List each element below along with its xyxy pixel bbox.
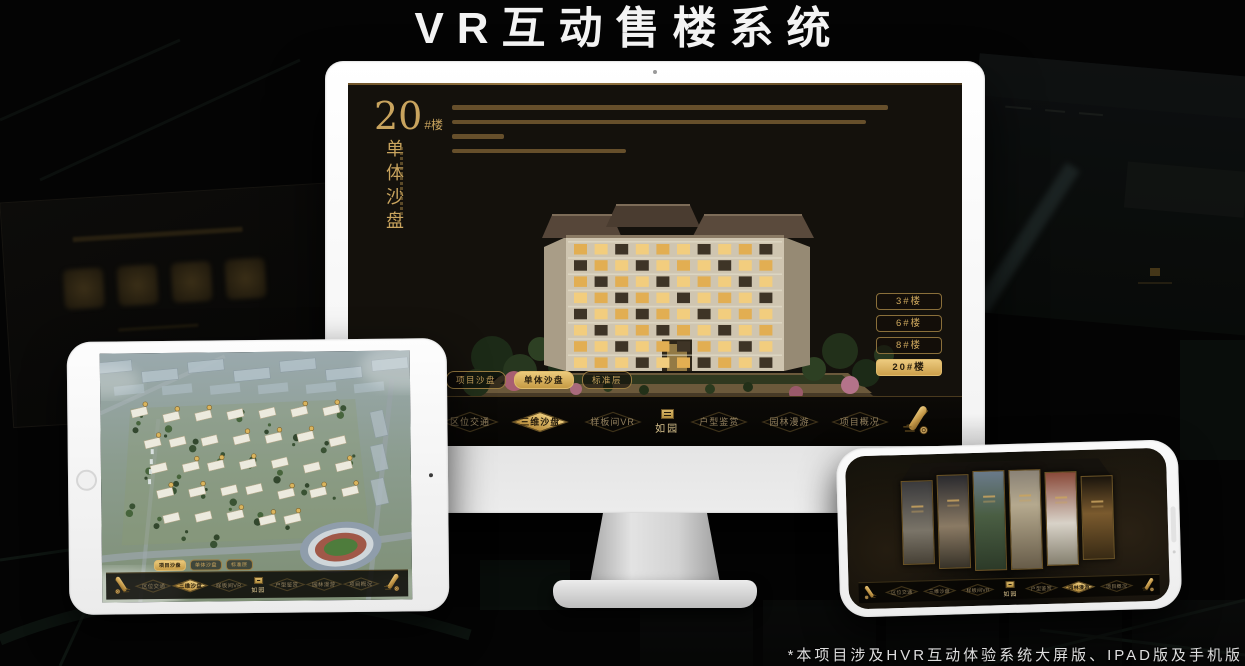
nav-item-label: 三维沙盘 (520, 417, 560, 427)
nav-item-label: 园林漫游 (312, 582, 335, 588)
seal-icon (661, 409, 674, 419)
nav-item-label: 样板间VR (966, 587, 990, 594)
nav-item-三维沙盘[interactable]: 三维沙盘 (510, 412, 570, 431)
aerial-masterplan (100, 350, 413, 602)
nav-item-区位交通[interactable]: 区位交通 (138, 580, 169, 592)
nav-item-label: 户型鉴赏 (1031, 585, 1052, 592)
nav-item-样板间VR[interactable]: 样板间VR (212, 579, 246, 591)
scroll-icon[interactable] (1140, 576, 1157, 593)
nav-item-label: 三维沙盘 (929, 588, 950, 595)
nav-item-三维沙盘[interactable]: 三维沙盘 (926, 585, 953, 597)
nav-item-label: 户型鉴赏 (699, 417, 739, 427)
scene-panel[interactable] (972, 470, 1007, 571)
building-button-6#楼[interactable]: 6#楼 (876, 315, 942, 332)
section-unit: #楼 (424, 118, 443, 132)
nav-item-label: 样板间VR (216, 583, 242, 589)
monitor-subtabs: 项目沙盘单体沙盘标准层 (446, 371, 632, 389)
scene-panel[interactable] (936, 474, 971, 569)
subtab-单体沙盘[interactable]: 单体沙盘 (514, 371, 574, 389)
building-button-8#楼[interactable]: 8#楼 (876, 337, 942, 354)
tablet-screen: 项目沙盘单体沙盘标准层 区位交通三维沙盘样板间VR如园户型鉴赏园林漫游项目概况 (100, 350, 413, 602)
nav-item-label: 项目概况 (349, 582, 372, 588)
gold-divider (348, 83, 962, 85)
nav-item-项目概况[interactable]: 项目概况 (1103, 580, 1130, 592)
nav-item-label: 园林漫游 (770, 417, 810, 427)
nav-item-项目概况[interactable]: 项目概况 (345, 578, 376, 590)
scroll-icon[interactable] (110, 575, 132, 597)
subtab-单体沙盘[interactable]: 单体沙盘 (190, 559, 222, 570)
building-button-20#楼[interactable]: 20#楼 (876, 359, 942, 376)
seal-icon (1006, 580, 1015, 587)
page-title: VR互动售楼系统 (0, 0, 1245, 58)
footnote: *本项目涉及HVR互动体验系统大屏版、IPAD版及手机版 (788, 644, 1243, 665)
background-aerial-photo (957, 53, 1245, 337)
logo-text: 如园 (1003, 588, 1017, 597)
scene-panels (900, 465, 1115, 575)
nav-item-园林漫游[interactable]: 园林漫游 (1065, 581, 1092, 593)
scroll-icon[interactable] (900, 404, 936, 440)
section-subtitle-en (400, 147, 403, 217)
scene-panel[interactable] (900, 480, 934, 565)
home-button[interactable] (76, 469, 97, 490)
nav-item-三维沙盘[interactable]: 三维沙盘 (175, 580, 206, 592)
phone-navbar: 区位交通三维沙盘样板间VR如园户型鉴赏园林漫游项目概况 (858, 574, 1159, 603)
scroll-icon[interactable] (382, 572, 404, 594)
subtab-项目沙盘[interactable]: 项目沙盘 (154, 560, 186, 571)
seal-icon (254, 576, 263, 583)
nav-item-label: 三维沙盘 (179, 584, 202, 590)
nav-item-label: 区位交通 (142, 584, 165, 590)
nav-item-户型鉴赏[interactable]: 户型鉴赏 (689, 412, 749, 431)
nav-item-label: 项目概况 (1106, 583, 1127, 590)
monitor-stand-neck (590, 513, 720, 583)
nav-item-户型鉴赏[interactable]: 户型鉴赏 (271, 579, 302, 591)
building-selector: 3#楼6#楼8#楼20#楼 (876, 293, 942, 376)
monitor-stand-base (553, 580, 757, 608)
phone-side-button (1173, 550, 1176, 553)
stage: VR互动售楼系统 20#楼 单体沙盘 (0, 0, 1245, 666)
logo-text: 如园 (251, 584, 265, 593)
nav-item-样板间VR[interactable]: 样板间VR (580, 412, 645, 431)
subtab-项目沙盘[interactable]: 项目沙盘 (446, 371, 506, 389)
app-logo: 如园 (655, 409, 679, 435)
tablet-frame: 项目沙盘单体沙盘标准层 区位交通三维沙盘样板间VR如园户型鉴赏园林漫游项目概况 (67, 338, 450, 615)
scene-panel[interactable] (1080, 475, 1114, 560)
nav-item-园林漫游[interactable]: 园林漫游 (760, 412, 820, 431)
nav-item-项目概况[interactable]: 项目概况 (830, 412, 890, 431)
nav-item-label: 户型鉴赏 (275, 583, 298, 589)
app-logo: 如园 (1003, 580, 1017, 597)
nav-item-label: 区位交通 (891, 589, 912, 596)
logo-text: 如园 (655, 420, 679, 435)
background-seal-mark (1150, 268, 1160, 276)
nav-item-label: 区位交通 (450, 417, 490, 427)
nav-item-label: 园林漫游 (1068, 584, 1089, 591)
scene-panel[interactable] (1008, 469, 1043, 570)
tablet-subtabs: 项目沙盘单体沙盘标准层 (154, 559, 253, 571)
nav-item-样板间VR[interactable]: 样板间VR (963, 584, 993, 596)
scroll-icon[interactable] (861, 584, 878, 601)
nav-item-区位交通[interactable]: 区位交通 (888, 586, 915, 598)
subtab-标准层[interactable]: 标准层 (226, 559, 253, 570)
nav-item-户型鉴赏[interactable]: 户型鉴赏 (1028, 582, 1055, 594)
webcam-dot (653, 70, 657, 74)
section-number: 20 (374, 94, 422, 138)
nav-item-区位交通[interactable]: 区位交通 (440, 412, 500, 431)
nav-item-label: 项目概况 (840, 417, 880, 427)
nav-item-label: 样板间VR (590, 417, 635, 427)
phone-notch (1170, 506, 1176, 542)
tablet-navbar: 区位交通三维沙盘样板间VR如园户型鉴赏园林漫游项目概况 (106, 569, 408, 599)
app-logo: 如园 (251, 576, 265, 593)
subtab-标准层[interactable]: 标准层 (582, 371, 632, 389)
building-button-3#楼[interactable]: 3#楼 (876, 293, 942, 310)
section-heading: 20#楼 单体沙盘 (374, 97, 443, 257)
tablet-camera-dot (429, 473, 433, 477)
phone-screen: 区位交通三维沙盘样板间VR如园户型鉴赏园林漫游项目概况 (845, 448, 1170, 610)
phone-frame: 区位交通三维沙盘样板间VR如园户型鉴赏园林漫游项目概况 (836, 439, 1183, 617)
scene-panel[interactable] (1044, 471, 1079, 566)
nav-item-园林漫游[interactable]: 园林漫游 (308, 578, 339, 590)
